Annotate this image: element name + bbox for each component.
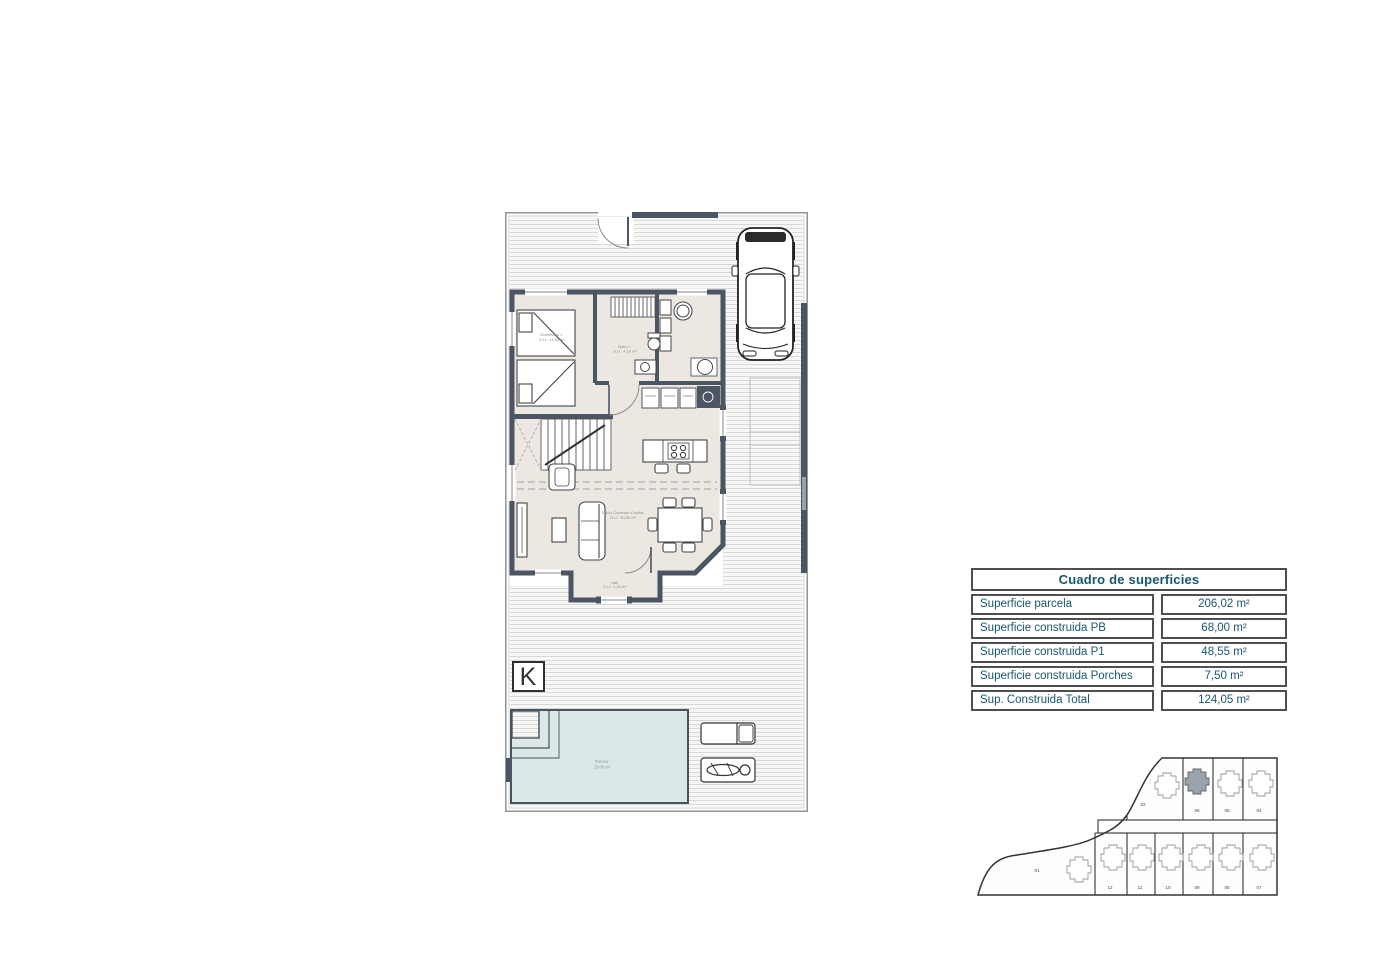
svg-text:05: 05 [1224,808,1230,813]
table-row: Sup. Construida Total 124,05 m² [971,690,1287,711]
pool: Piscina 18,00 m² [506,710,688,803]
floor-plan-drawing: Dormitorio 1 S.U.: 11,90 m² Baño 1 S.U.:… [505,212,808,812]
row-value: 124,05 m² [1161,690,1287,711]
wardrobe [611,297,655,317]
svg-text:07: 07 [1256,885,1262,890]
plan-sheet: Dormitorio 1 S.U.: 11,90 m² Baño 1 S.U.:… [0,0,1400,980]
entrance-gate [632,212,718,218]
right-boundary-wall [801,303,807,573]
right-boundary-wall-notch [802,477,806,510]
compass-logo-box: K [513,662,544,691]
front-door [596,597,632,604]
site-plan: 01 02 06 05 04 12 11 10 09 08 07 [975,742,1295,905]
svg-text:04: 04 [1256,808,1262,813]
svg-text:09: 09 [1194,885,1200,890]
bedroom-label: Dormitorio 1 S.U.: 11,90 m² [539,332,565,342]
row-label: Superficie construida P1 [971,642,1154,663]
car-top-view [732,228,799,360]
svg-text:08: 08 [1224,885,1230,890]
row-label: Superficie parcela [971,594,1154,615]
logo-k: K [520,663,537,691]
surface-table: Cuadro de superficies Superficie parcela… [971,568,1287,714]
highlighted-plot-house [1185,769,1209,794]
row-label: Sup. Construida Total [971,690,1154,711]
pool-label: Piscina 18,00 m² [594,759,611,770]
row-value: 48,55 m² [1161,642,1287,663]
row-label: Superficie construida Porches [971,666,1154,687]
row-label: Superficie construida PB [971,618,1154,639]
row-value: 7,50 m² [1161,666,1287,687]
kitchen-counter [642,386,720,408]
svg-text:10: 10 [1165,885,1171,890]
table-row: Superficie construida P1 48,55 m² [971,642,1287,663]
row-value: 206,02 m² [1161,594,1287,615]
svg-text:01: 01 [1034,868,1040,873]
table-row: Superficie construida PB 68,00 m² [971,618,1287,639]
svg-text:06: 06 [1194,808,1200,813]
table-row: Superficie parcela 206,02 m² [971,594,1287,615]
svg-text:11: 11 [1138,885,1143,890]
row-value: 68,00 m² [1161,618,1287,639]
svg-text:02: 02 [1140,802,1146,807]
svg-text:12: 12 [1107,885,1113,890]
surface-table-title: Cuadro de superficies [971,568,1287,591]
table-row: Superficie construida Porches 7,50 m² [971,666,1287,687]
